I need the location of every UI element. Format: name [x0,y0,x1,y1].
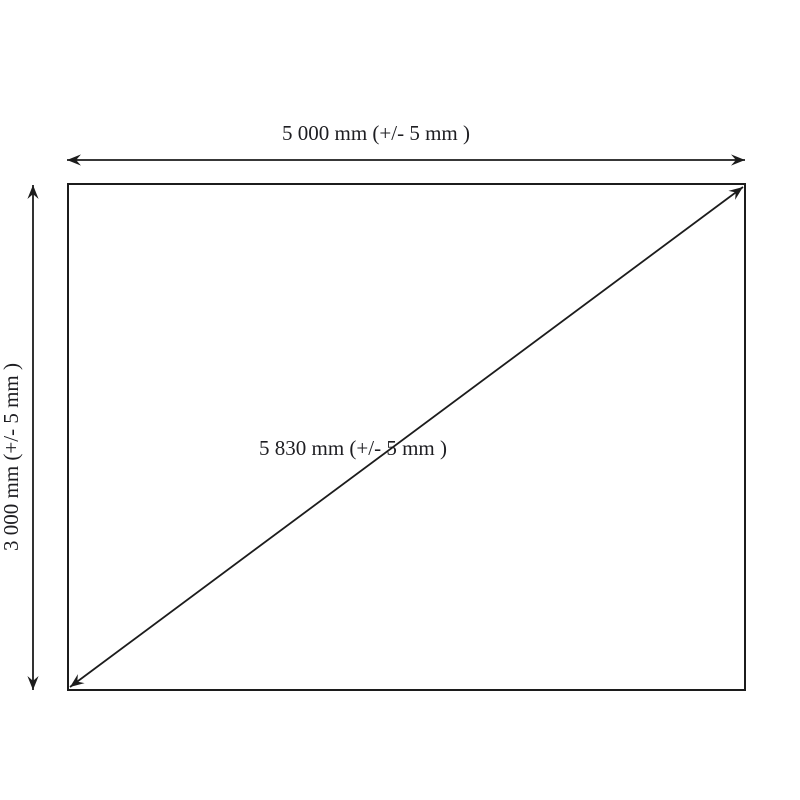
dimension-diagram: 5 000 mm (+/- 5 mm ) 3 000 mm (+/- 5 mm … [0,0,800,800]
diagonal-dimension-label: 5 830 mm (+/- 5 mm ) [259,436,447,460]
width-dimension-label: 5 000 mm (+/- 5 mm ) [282,121,470,145]
height-dimension-label: 3 000 mm (+/- 5 mm ) [0,363,23,551]
dimension-diagram-page: 5 000 mm (+/- 5 mm ) 3 000 mm (+/- 5 mm … [0,0,800,800]
